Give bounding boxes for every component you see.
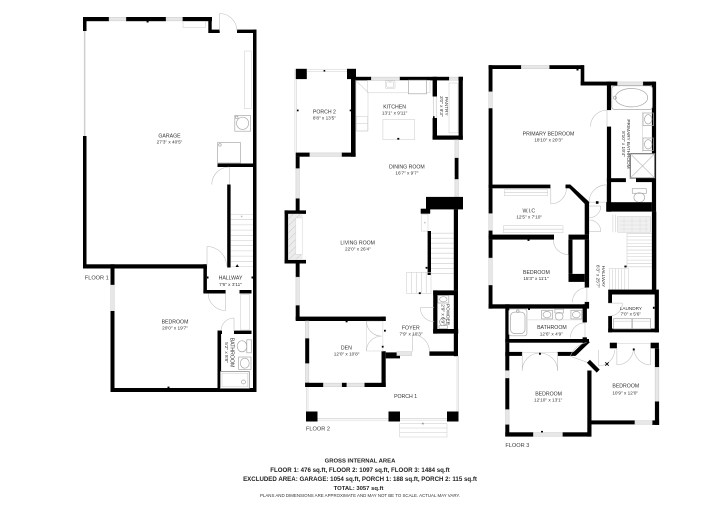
svg-text:KITCHEN: KITCHEN: [383, 104, 406, 110]
svg-text:3'0" x 9'3": 3'0" x 9'3": [439, 96, 444, 117]
svg-text:5'2" x 8'8": 5'2" x 8'8": [224, 342, 229, 363]
svg-text:16'7" x 9'7": 16'7" x 9'7": [395, 170, 418, 175]
svg-text:PLANS AND DIMENSIONS ARE APPRO: PLANS AND DIMENSIONS ARE APPROXIMATE AND…: [260, 493, 460, 498]
svg-text:PORCH 1: PORCH 1: [394, 394, 417, 400]
svg-text:7'0" x 5'6": 7'0" x 5'6": [621, 311, 642, 316]
svg-text:18'10" x 20'3": 18'10" x 20'3": [534, 137, 563, 142]
svg-text:22'0" x 26'4": 22'0" x 26'4": [345, 247, 371, 252]
svg-text:20'0" x 19'7": 20'0" x 19'7": [162, 326, 188, 331]
svg-text:13'1" x 9'11": 13'1" x 9'11": [382, 111, 408, 116]
svg-text:BATHROOM: BATHROOM: [537, 325, 567, 331]
svg-text:FLOOR 1: FLOOR 1: [85, 276, 109, 282]
svg-text:7'6" x 3'11": 7'6" x 3'11": [219, 282, 242, 287]
svg-text:8'8" x 13'5": 8'8" x 13'5": [313, 116, 336, 121]
svg-text:12'10" x 13'1": 12'10" x 13'1": [534, 398, 563, 403]
svg-text:BEDROOM: BEDROOM: [535, 391, 562, 397]
svg-text:12'5" x 7'10": 12'5" x 7'10": [516, 214, 542, 219]
svg-text:GROSS INTERNAL AREA: GROSS INTERNAL AREA: [325, 459, 396, 465]
svg-text:EXCLUDED AREA: GARAGE: 1054 sq: EXCLUDED AREA: GARAGE: 1054 sq.ft, PORCH…: [243, 476, 477, 483]
svg-text:PORCH 2: PORCH 2: [313, 109, 336, 115]
svg-text:FLOOR 3: FLOOR 3: [505, 443, 529, 449]
svg-text:15'3" x 11'1": 15'3" x 11'1": [523, 276, 549, 281]
svg-text:8'10" x 19'4": 8'10" x 19'4": [621, 131, 626, 157]
svg-text:10'9" x 12'0": 10'9" x 12'0": [612, 390, 638, 395]
svg-text:12'6" x 4'9": 12'6" x 4'9": [540, 332, 563, 337]
svg-text:TOTAL: 3057 sq.ft: TOTAL: 3057 sq.ft: [334, 486, 384, 492]
svg-text:12'0" x 10'8": 12'0" x 10'8": [334, 352, 360, 357]
svg-text:HALLWAY: HALLWAY: [219, 276, 243, 282]
svg-text:LAUNDRY: LAUNDRY: [620, 306, 643, 311]
svg-text:FLOOR 1: 476 sq.ft, FLOOR 2: 1: FLOOR 1: 476 sq.ft, FLOOR 2: 1097 sq.ft,…: [270, 467, 449, 474]
svg-text:27'3" x 40'5": 27'3" x 40'5": [157, 139, 183, 144]
svg-text:2'9" x 6'9": 2'9" x 6'9": [441, 304, 446, 325]
svg-text:7'9" x 10'3": 7'9" x 10'3": [399, 332, 422, 337]
svg-text:BEDROOM: BEDROOM: [612, 384, 639, 390]
svg-text:6'3" x 25'7": 6'3" x 25'7": [596, 265, 601, 288]
svg-text:FLOOR 2: FLOOR 2: [306, 427, 330, 433]
